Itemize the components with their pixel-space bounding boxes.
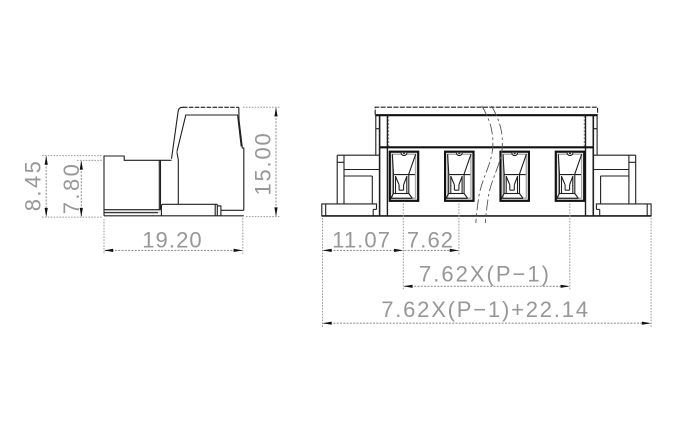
svg-text:8.45: 8.45 bbox=[21, 159, 46, 211]
svg-text:7.80: 7.80 bbox=[59, 162, 84, 214]
svg-text:19.20: 19.20 bbox=[142, 228, 203, 253]
svg-text:11.07: 11.07 bbox=[332, 228, 391, 253]
svg-text:7.62X(P−1)+22.14: 7.62X(P−1)+22.14 bbox=[381, 297, 590, 322]
svg-text:7.62: 7.62 bbox=[407, 228, 454, 253]
svg-text:7.62X(P−1): 7.62X(P−1) bbox=[419, 262, 551, 287]
svg-text:15.00: 15.00 bbox=[251, 131, 276, 195]
